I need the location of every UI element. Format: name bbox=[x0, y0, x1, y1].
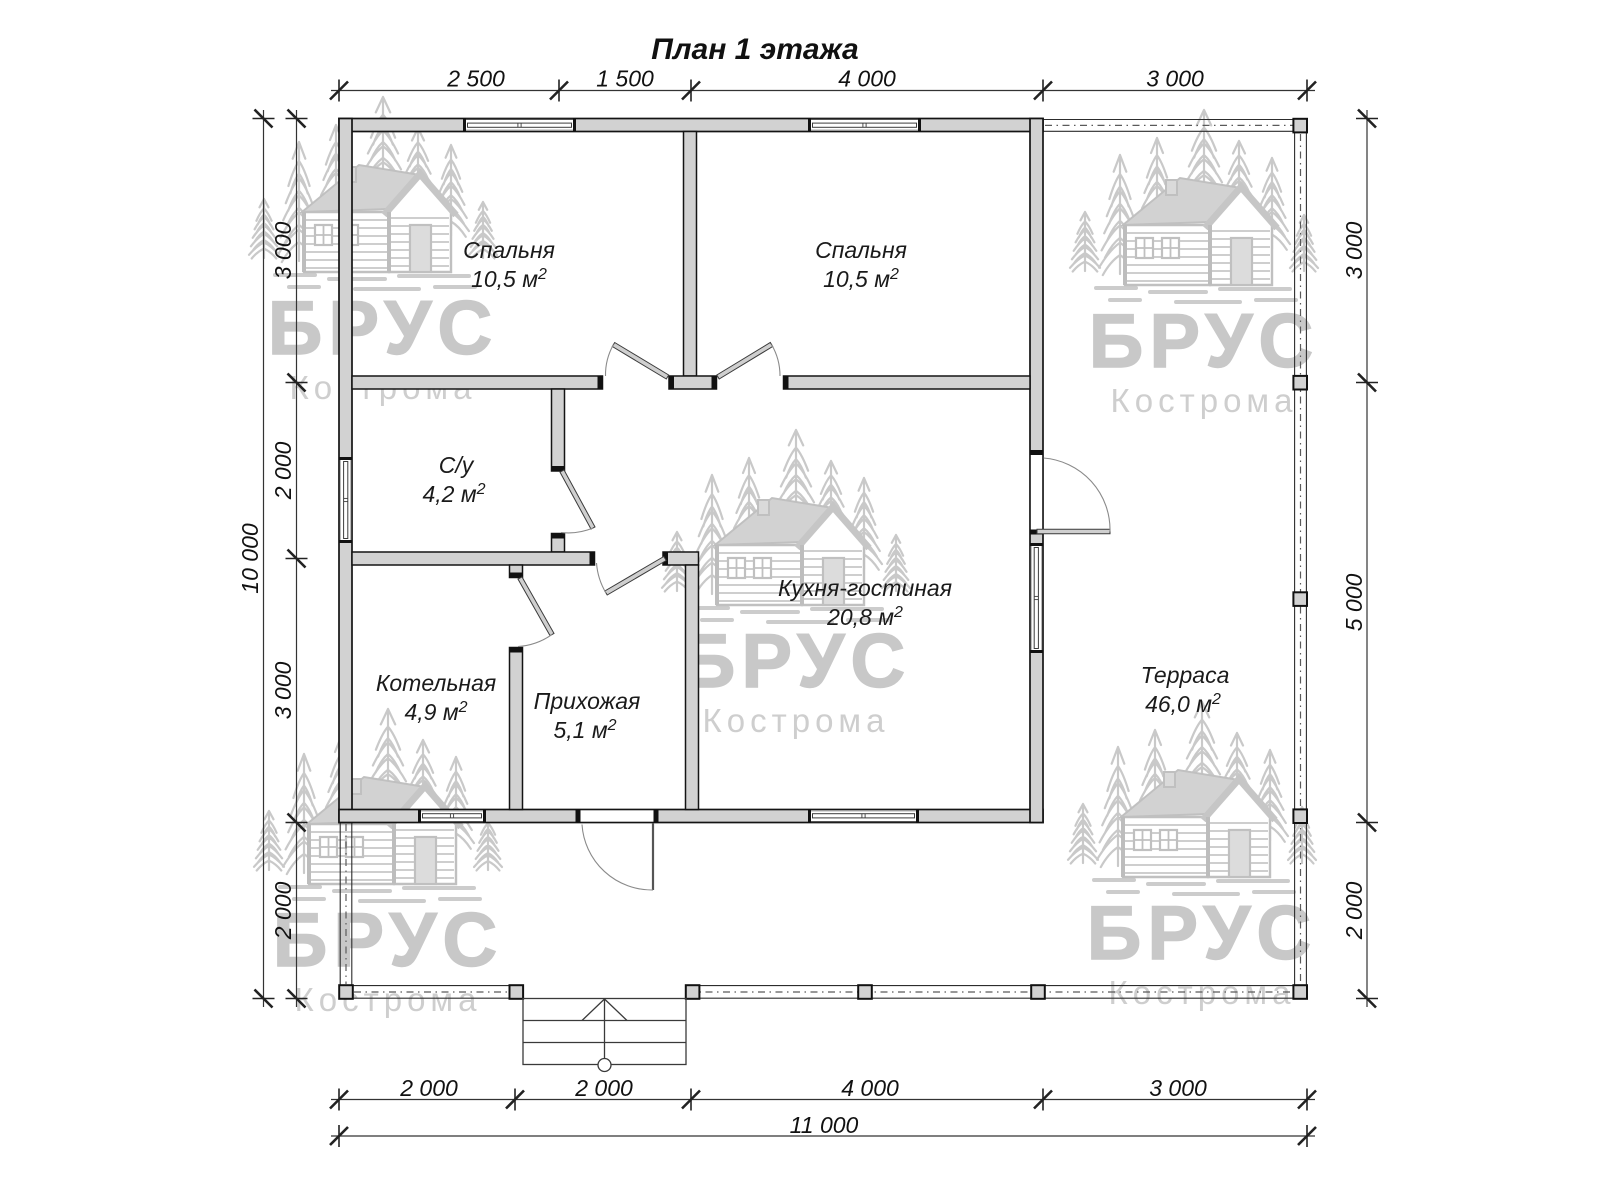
svg-text:11 000: 11 000 bbox=[790, 1112, 859, 1138]
svg-text:План 1 этажа: План 1 этажа bbox=[651, 33, 858, 66]
svg-text:С/у: С/у bbox=[439, 452, 475, 478]
svg-text:4,9 м2: 4,9 м2 bbox=[404, 699, 467, 725]
svg-text:2 000: 2 000 bbox=[270, 882, 296, 941]
svg-text:3 000: 3 000 bbox=[1341, 222, 1367, 280]
svg-text:3 000: 3 000 bbox=[270, 222, 296, 280]
svg-text:46,0 м2: 46,0 м2 bbox=[1145, 691, 1221, 717]
svg-text:3 000: 3 000 bbox=[270, 662, 296, 720]
svg-text:3 000: 3 000 bbox=[1146, 66, 1204, 92]
svg-text:4 000: 4 000 bbox=[838, 66, 896, 92]
svg-text:2 000: 2 000 bbox=[1341, 882, 1367, 941]
svg-text:10,5 м2: 10,5 м2 bbox=[471, 266, 547, 292]
svg-text:Спальня: Спальня bbox=[463, 237, 555, 263]
svg-text:3 000: 3 000 bbox=[1149, 1075, 1207, 1101]
svg-text:2 000: 2 000 bbox=[574, 1075, 633, 1101]
svg-text:Спальня: Спальня bbox=[815, 237, 907, 263]
svg-text:4 000: 4 000 bbox=[841, 1075, 899, 1101]
svg-text:2 500: 2 500 bbox=[446, 66, 505, 92]
svg-text:5,1 м2: 5,1 м2 bbox=[553, 717, 616, 743]
svg-text:Кухня-гостиная: Кухня-гостиная bbox=[778, 575, 952, 601]
svg-text:Прихожая: Прихожая bbox=[534, 688, 641, 714]
svg-text:10 000: 10 000 bbox=[237, 523, 263, 594]
svg-text:Терраса: Терраса bbox=[1141, 662, 1230, 688]
svg-text:5 000: 5 000 bbox=[1341, 574, 1367, 632]
svg-text:4,2 м2: 4,2 м2 bbox=[422, 481, 485, 507]
svg-text:2 000: 2 000 bbox=[399, 1075, 458, 1101]
svg-text:2 000: 2 000 bbox=[270, 442, 296, 501]
svg-text:20,8 м2: 20,8 м2 bbox=[826, 604, 903, 630]
svg-text:10,5 м2: 10,5 м2 bbox=[823, 266, 899, 292]
svg-text:Котельная: Котельная bbox=[376, 670, 496, 696]
svg-text:1 500: 1 500 bbox=[596, 66, 654, 92]
